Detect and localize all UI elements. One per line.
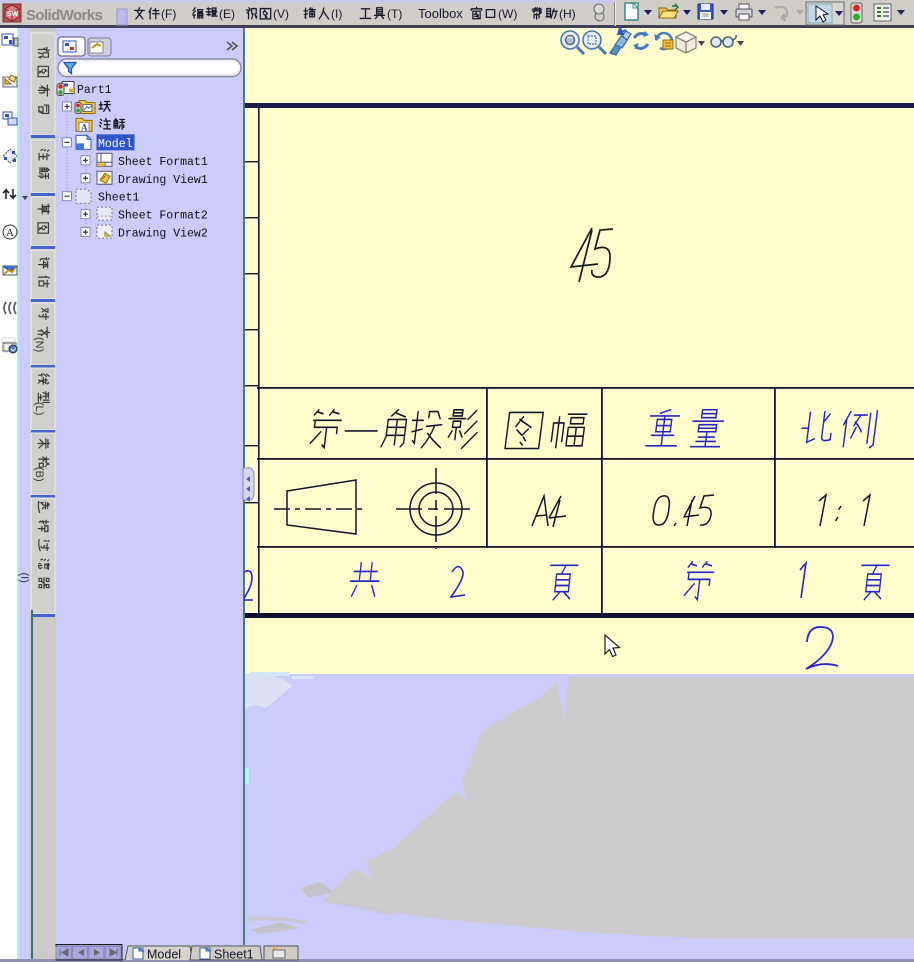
svg-text:(N): (N) (33, 337, 45, 352)
svg-text:Drawing View2: Drawing View2 (118, 228, 208, 241)
svg-text:Sheet Format1: Sheet Format1 (118, 156, 208, 169)
svg-text:A: A (6, 227, 14, 239)
svg-text:(H): (H) (559, 7, 576, 21)
svg-text:Part1: Part1 (77, 84, 112, 97)
svg-text:(I): (I) (331, 7, 342, 21)
svg-text:(E): (E) (219, 7, 235, 21)
svg-text:(F): (F) (161, 7, 176, 21)
svg-text:(I): (I) (18, 573, 30, 583)
svg-text:(W): (W) (498, 7, 517, 21)
svg-text:Sheet Format2: Sheet Format2 (118, 210, 208, 223)
svg-text:Model: Model (98, 138, 133, 151)
svg-text:(B): (B) (33, 467, 45, 482)
svg-text:Toolbox: Toolbox (418, 6, 463, 21)
svg-text:Model: Model (147, 948, 181, 962)
svg-text:(V): (V) (273, 7, 289, 21)
svg-text:(L): (L) (33, 402, 45, 415)
svg-text:SolidWorks: SolidWorks (26, 7, 102, 24)
svg-text:A: A (81, 122, 88, 132)
svg-text:SW: SW (7, 11, 19, 18)
svg-text:(T): (T) (387, 7, 402, 21)
svg-text:Drawing View1: Drawing View1 (118, 174, 208, 187)
svg-text:Sheet1: Sheet1 (214, 948, 254, 962)
svg-text:Sheet1: Sheet1 (98, 192, 140, 205)
